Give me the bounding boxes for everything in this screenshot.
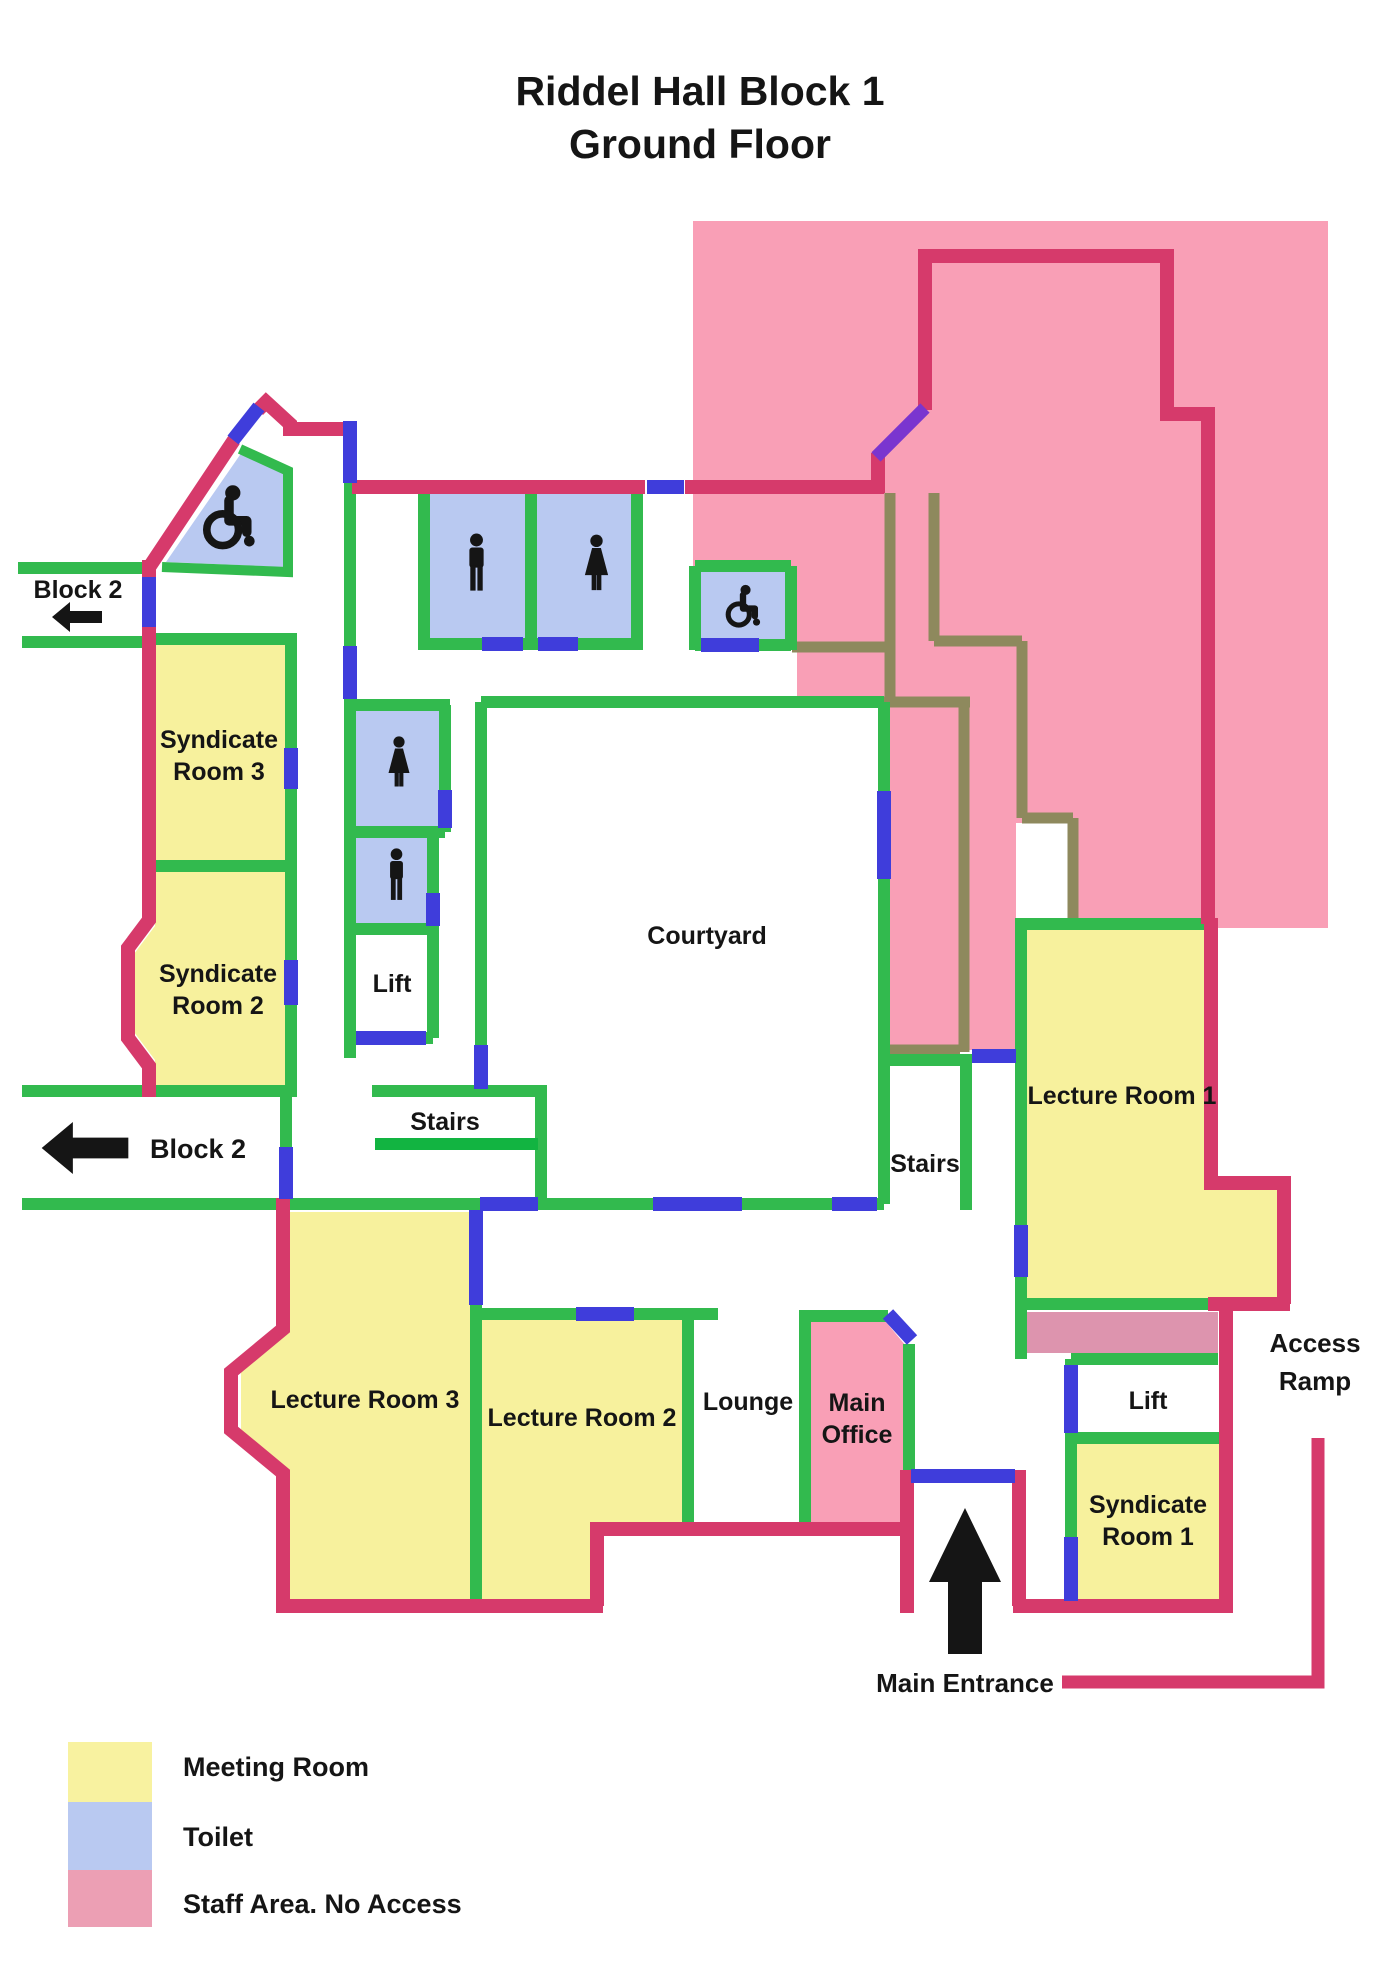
block2-label-bottom: Block 2 xyxy=(150,1134,246,1164)
room-label-syndicate2-line1: Syndicate xyxy=(159,960,277,988)
room-label-syndicate2-line2: Room 2 xyxy=(172,992,264,1020)
floor-plan-svg: Riddel Hall Block 1 Ground Floor Block 2… xyxy=(0,0,1400,1980)
left-arrow-icon xyxy=(52,602,102,632)
room-syndicate-1 xyxy=(1077,1444,1220,1600)
page-title-line2: Ground Floor xyxy=(569,121,831,167)
room-label-office-line1: Main xyxy=(829,1389,886,1417)
room-label-syndicate3-line1: Syndicate xyxy=(160,726,278,754)
room-label-syndicate1-line1: Syndicate xyxy=(1089,1491,1207,1519)
legend-label-staff-area: Staff Area. No Access xyxy=(183,1889,462,1919)
room-label-lift-left: Lift xyxy=(373,970,413,998)
access-ramp-label-line1: Access xyxy=(1269,1328,1360,1358)
room-label-stairs-left: Stairs xyxy=(410,1108,479,1136)
legend-label-meeting-room: Meeting Room xyxy=(183,1752,369,1782)
room-lecture-2 xyxy=(482,1320,682,1600)
room-label-lecture2: Lecture Room 2 xyxy=(488,1404,677,1432)
legend-swatch-toilet xyxy=(68,1802,152,1870)
page-title-line1: Riddel Hall Block 1 xyxy=(515,68,884,114)
legend-swatch-staff-area xyxy=(68,1870,152,1927)
staff-area-strip xyxy=(1025,1312,1218,1353)
left-arrow-icon xyxy=(42,1122,129,1174)
legend: Meeting Room Toilet Staff Area. No Acces… xyxy=(68,1742,462,1927)
room-label-lecture3: Lecture Room 3 xyxy=(271,1386,460,1414)
room-label-stairs-right: Stairs xyxy=(890,1150,959,1178)
room-label-syndicate3-line2: Room 3 xyxy=(173,758,265,786)
toilet-female-top xyxy=(537,490,631,638)
legend-swatch-meeting-room xyxy=(68,1742,152,1802)
access-ramp-label-line2: Ramp xyxy=(1279,1366,1351,1396)
room-label-lounge: Lounge xyxy=(703,1388,793,1416)
room-label-courtyard: Courtyard xyxy=(647,922,766,950)
room-label-lecture1: Lecture Room 1 xyxy=(1028,1082,1217,1110)
main-entrance-label: Main Entrance xyxy=(876,1668,1054,1698)
room-label-lift-right: Lift xyxy=(1129,1387,1169,1415)
block2-label-top: Block 2 xyxy=(34,576,123,604)
room-label-syndicate1-line2: Room 1 xyxy=(1102,1523,1194,1551)
room-lecture-1 xyxy=(1027,930,1278,1298)
room-label-office-line2: Office xyxy=(822,1421,893,1449)
up-arrow-icon xyxy=(929,1508,1001,1654)
legend-label-toilet: Toilet xyxy=(183,1822,253,1852)
floor-plan-page: Riddel Hall Block 1 Ground Floor Block 2… xyxy=(0,0,1400,1980)
